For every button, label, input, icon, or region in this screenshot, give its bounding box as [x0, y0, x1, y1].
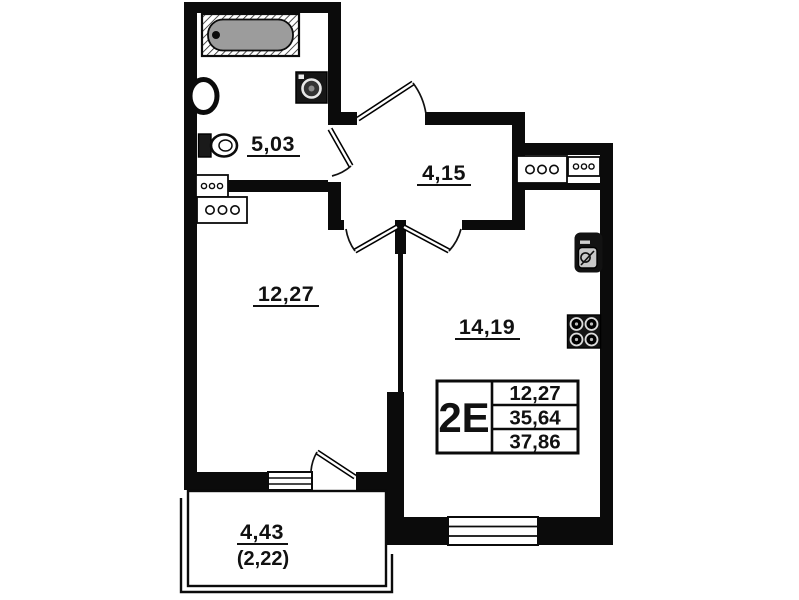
floor-plan-drawing: 5,03 4,15 12,27 14,19 4,43 (2,22) 2E 12,…: [0, 0, 799, 600]
window-room: [268, 472, 312, 490]
wall-bathroom-right: [328, 13, 341, 125]
bath-sink-icon: [190, 80, 217, 113]
wall-right: [600, 143, 613, 545]
bathtub-icon: [202, 14, 299, 56]
bathroom-area-label: 5,03: [251, 132, 295, 156]
kitchen-sink-icon: [575, 233, 603, 273]
kitchen-area-label: 14,19: [459, 315, 515, 339]
wall-room-bottom-right: [356, 472, 387, 490]
hallway-area-label: 4,15: [422, 161, 466, 185]
legend-total-area: 37,86: [509, 431, 560, 454]
wall-hall-top-stub: [341, 112, 357, 125]
door-balcony: [311, 452, 355, 477]
wall-partition-lower: [387, 392, 404, 517]
wall-hall-top-right: [425, 112, 525, 125]
legend-table: 2E 12,27 35,64 37,86: [437, 381, 578, 454]
balcony-area-label: 4,43: [240, 520, 284, 544]
legend-area: 35,64: [509, 407, 561, 430]
wall-hall-bottom-right: [462, 220, 517, 230]
vent-grille-icon-kitchen-small: [568, 157, 600, 176]
apartment-type-label: 2E: [438, 394, 489, 441]
wall-room-bottom-left: [184, 472, 268, 490]
walls: [184, 2, 613, 545]
room-area-label: 12,27: [258, 282, 314, 306]
window-kitchen: [448, 517, 538, 545]
wall-hall-bottom-left: [328, 220, 344, 230]
wall-entry-top: [517, 143, 613, 155]
vent-grille-icon-bath-small: [196, 175, 228, 197]
floor-plan-page: 5,03 4,15 12,27 14,19 4,43 (2,22) 2E 12,…: [0, 0, 799, 600]
wall-kitchen-bottom-left: [387, 517, 448, 545]
legend-living-area: 12,27: [509, 382, 560, 405]
stove-icon: [568, 315, 601, 348]
vent-grille-icon-kitchen: [517, 156, 567, 183]
door-room: [346, 227, 397, 251]
balcony-coefficient-label: (2,22): [237, 548, 289, 570]
wall-top: [184, 2, 341, 13]
wall-vent-bottom: [517, 183, 600, 190]
wall-kitchen-bottom-right: [538, 517, 613, 545]
balcony-outline: [181, 491, 392, 592]
wall-left: [184, 2, 197, 490]
vent-grille-icon-room: [197, 197, 247, 223]
door-bathroom: [330, 129, 351, 176]
washing-machine-icon: [296, 72, 327, 103]
toilet-icon: [199, 134, 238, 157]
wall-door-post: [395, 220, 406, 254]
door-kitchen: [404, 227, 461, 251]
wall-partition-thin: [398, 254, 403, 392]
door-entrance: [358, 83, 426, 119]
